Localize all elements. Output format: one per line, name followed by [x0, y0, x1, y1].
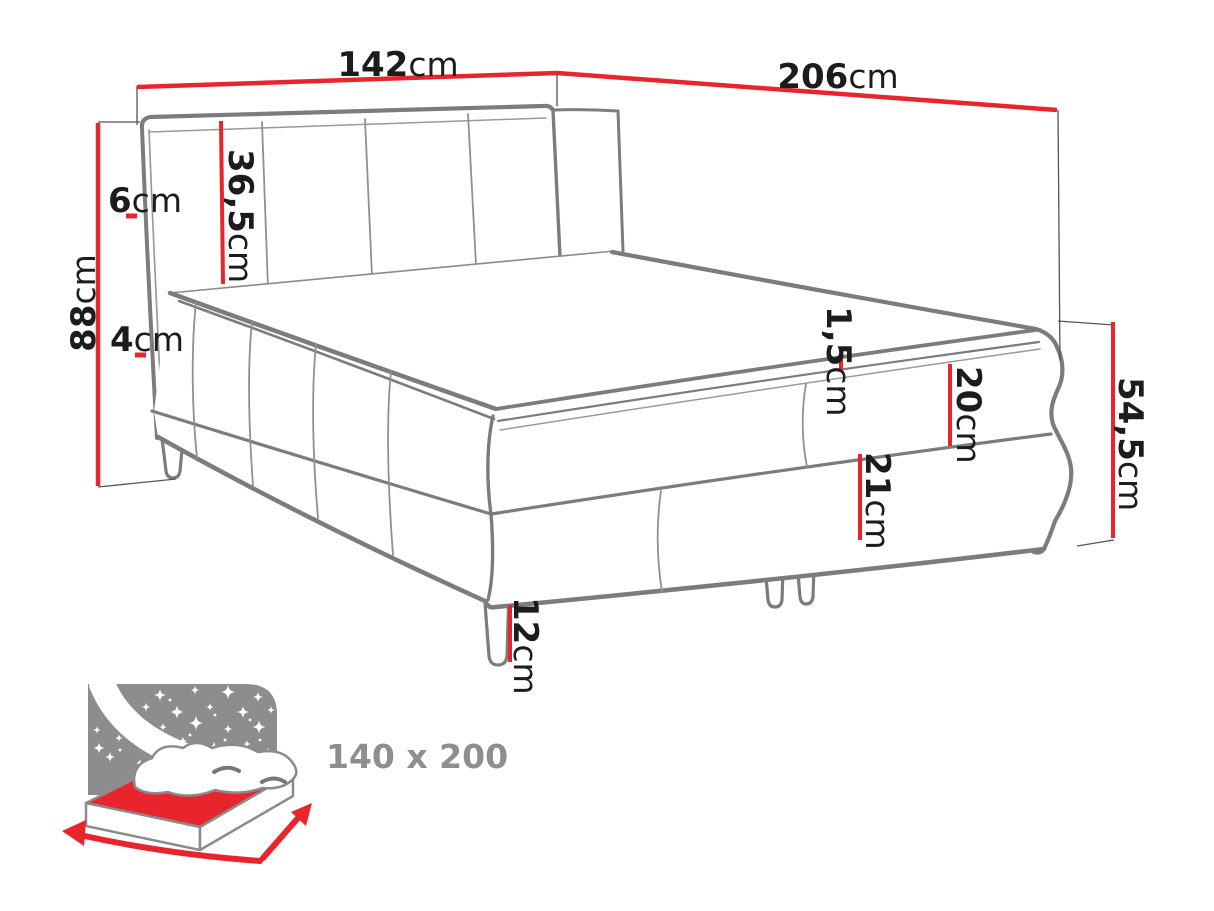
size-badge-label: 140 x 200	[326, 737, 508, 776]
length-arrowhead-icon	[62, 820, 86, 846]
bed-body-fill	[154, 250, 1071, 607]
bed-drawing	[142, 106, 1071, 665]
dim-label-leg-height: 12cm	[505, 597, 545, 695]
dim-label-side-height: 54,5cm	[1110, 377, 1150, 511]
dim-label-lower-box-height: 21cm	[857, 452, 897, 550]
dim-line-width-length	[137, 73, 1057, 110]
dim-label-headboard-width: 142cm	[337, 45, 458, 85]
connector-88-bottom	[98, 479, 176, 487]
bed-body	[152, 250, 1071, 607]
dim-label-bed-length: 206cm	[777, 57, 898, 97]
bed-dimension-diagram: 142cm 206cm 88cm 6cm 36,5cm 4cm 1,5cm 20…	[0, 0, 1214, 911]
dim-label-upper-box-height: 20cm	[948, 366, 988, 464]
dim-label-topper-seam: 1,5cm	[818, 306, 858, 417]
width-arrow-icon	[263, 818, 298, 858]
dim-label-headboard-panel-height: 36,5cm	[220, 149, 260, 283]
connector-545-top	[1058, 321, 1114, 325]
dim-label-frame-offset: 4cm	[110, 320, 184, 360]
headboard-side-face	[553, 110, 623, 255]
dim-label-total-height: 88cm	[64, 254, 104, 352]
connector-545-bottom	[1077, 540, 1114, 546]
dim-label-headboard-thickness: 6cm	[108, 181, 182, 221]
bed-size-icon	[62, 684, 312, 861]
headboard-side-top-edge	[553, 110, 618, 111]
connector-206-right	[1058, 110, 1060, 360]
